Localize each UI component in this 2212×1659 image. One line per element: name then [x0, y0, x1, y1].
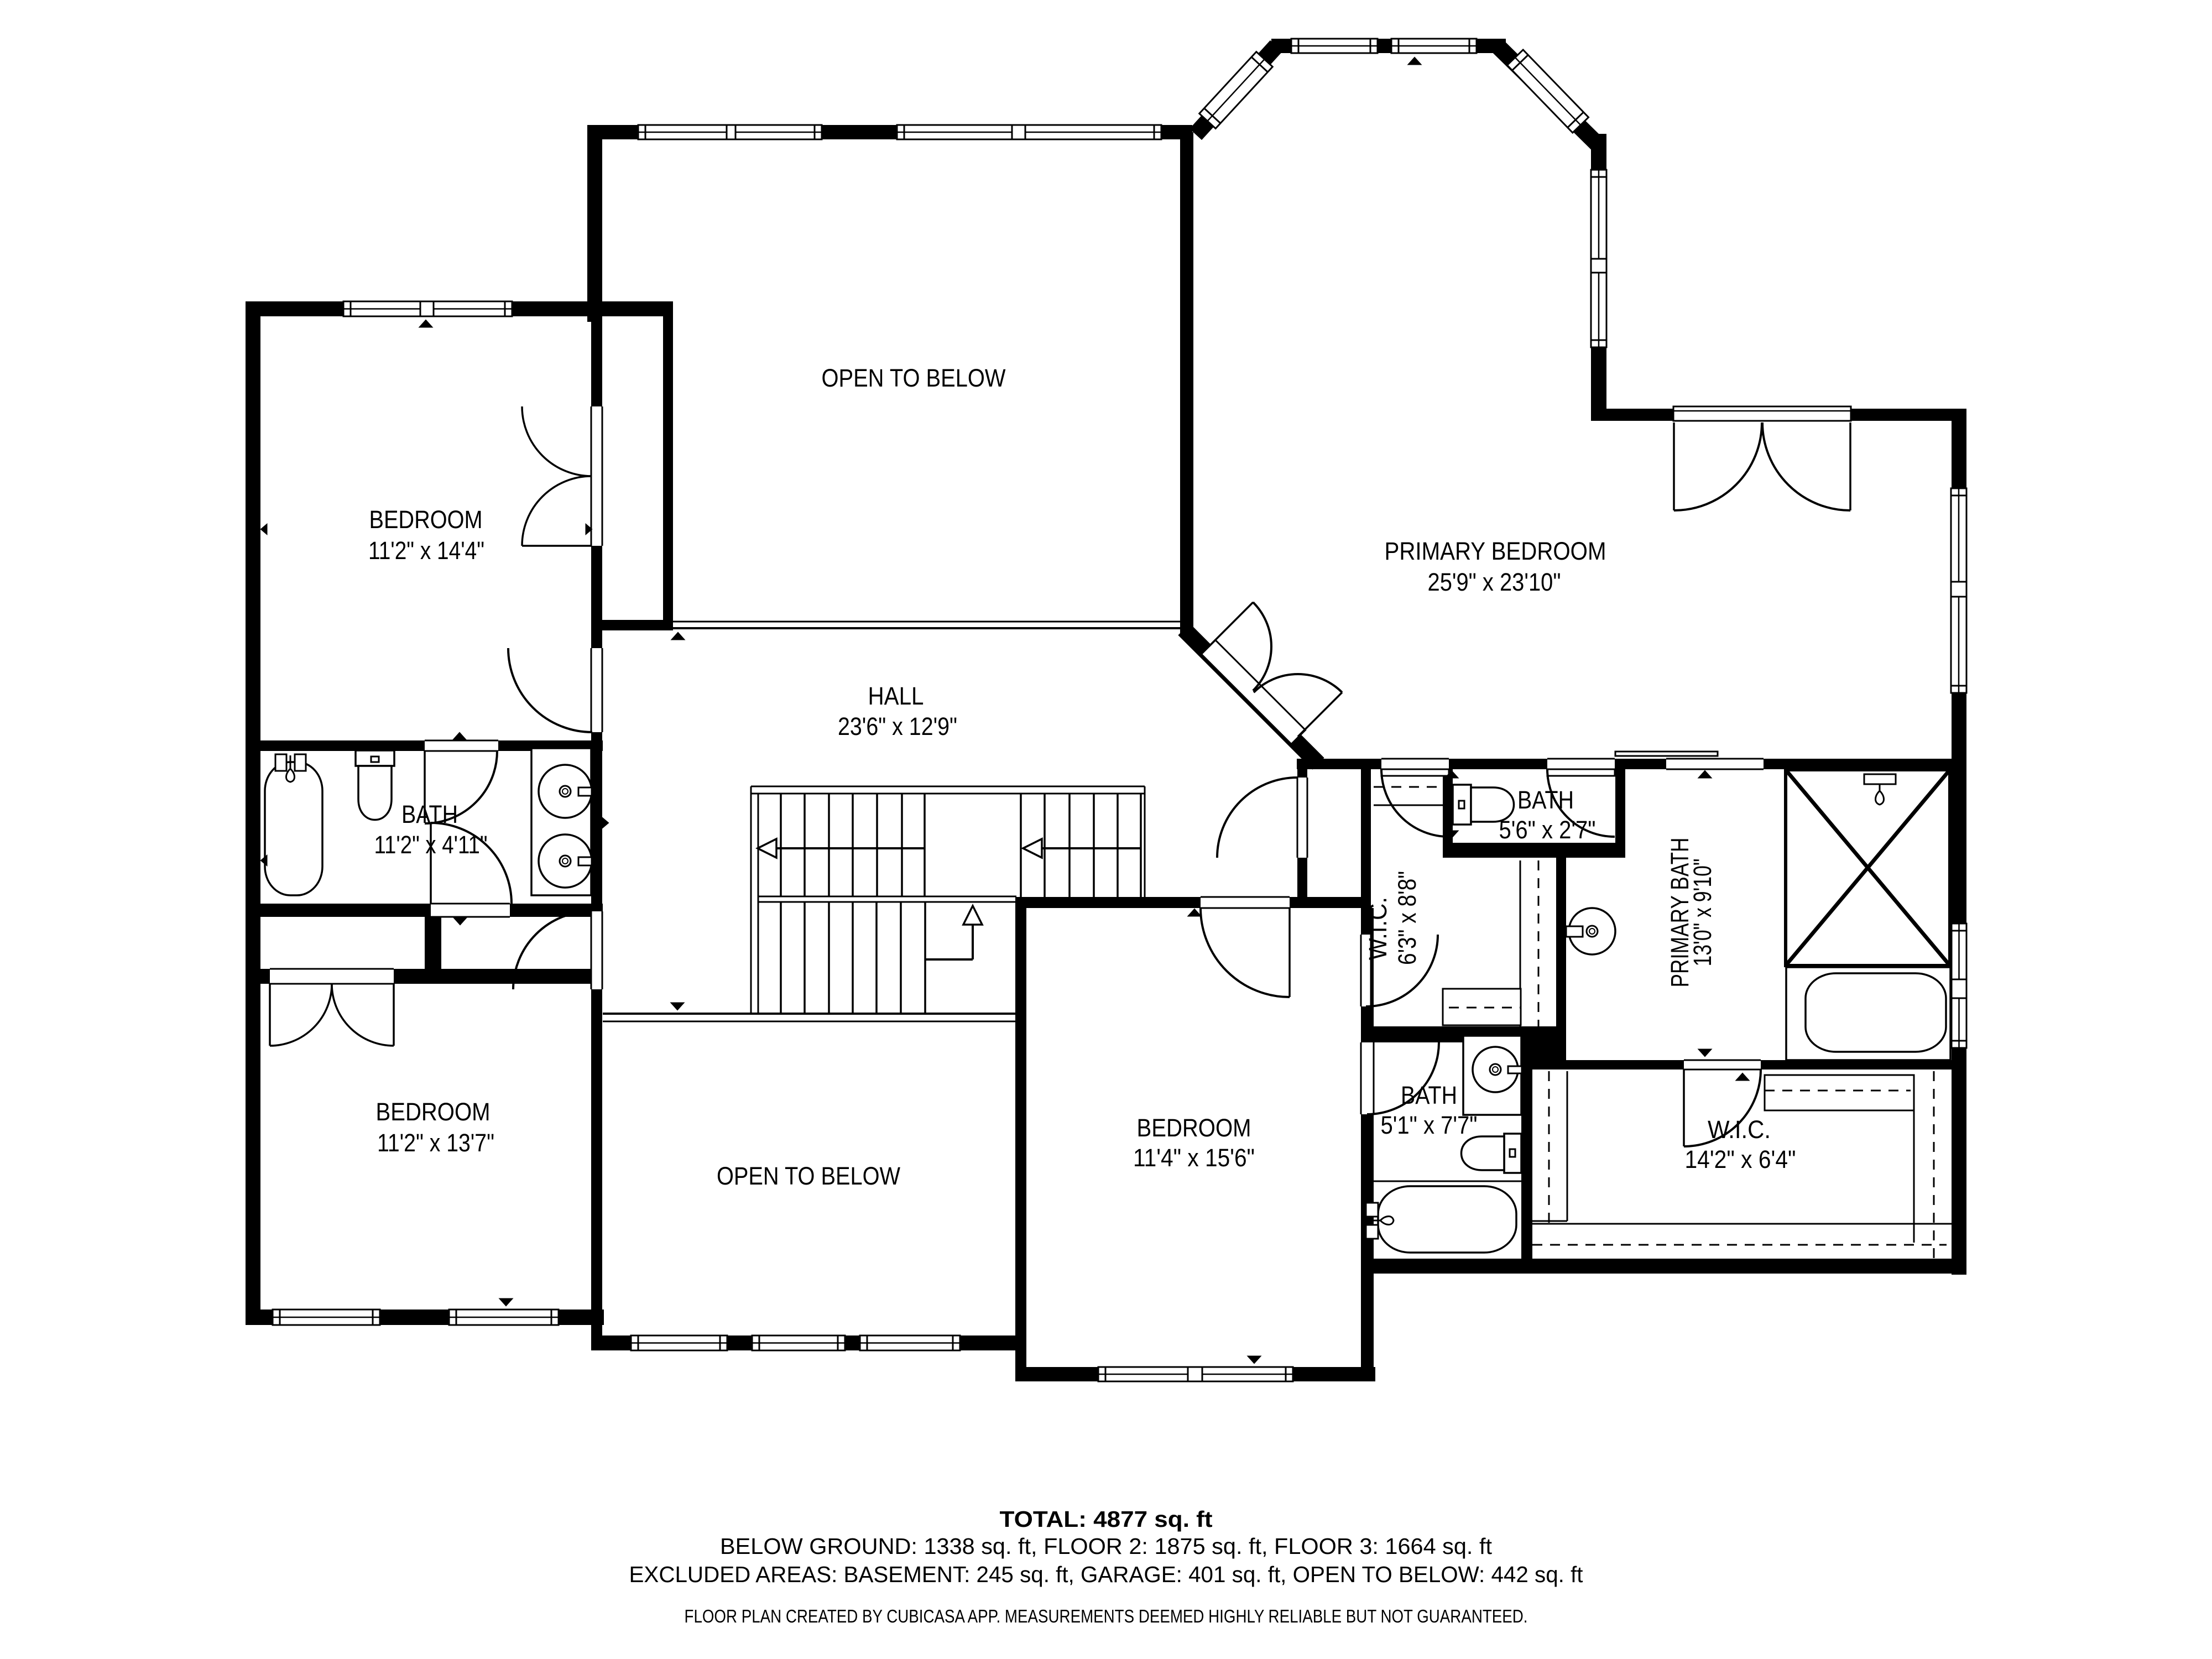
svg-text:11'2" x 14'4": 11'2" x 14'4" — [368, 536, 484, 565]
svg-text:FLOOR PLAN CREATED BY CUBICASA: FLOOR PLAN CREATED BY CUBICASA APP. MEAS… — [685, 1606, 1528, 1626]
svg-text:BATH: BATH — [1517, 786, 1574, 814]
svg-text:5'6" x 2'7": 5'6" x 2'7" — [1499, 816, 1596, 844]
svg-text:W.I.C.: W.I.C. — [1364, 897, 1392, 960]
svg-text:11'2" x 4'11": 11'2" x 4'11" — [374, 831, 488, 859]
svg-text:EXCLUDED AREAS: BASEMENT: 245: EXCLUDED AREAS: BASEMENT: 245 sq. ft, GA… — [629, 1562, 1584, 1587]
svg-text:TOTAL: 4877 sq. ft: TOTAL: 4877 sq. ft — [1000, 1506, 1213, 1532]
svg-text:6'3" x 8'8": 6'3" x 8'8" — [1393, 871, 1421, 965]
svg-text:BEDROOM: BEDROOM — [369, 505, 483, 534]
svg-text:W.I.C.: W.I.C. — [1708, 1115, 1771, 1144]
svg-text:25'9" x 23'10": 25'9" x 23'10" — [1428, 568, 1561, 596]
svg-text:5'1" x 7'7": 5'1" x 7'7" — [1381, 1111, 1478, 1139]
svg-text:14'2" x 6'4": 14'2" x 6'4" — [1685, 1145, 1796, 1173]
svg-text:11'4" x 15'6": 11'4" x 15'6" — [1133, 1144, 1255, 1172]
svg-text:11'2" x 13'7": 11'2" x 13'7" — [377, 1129, 494, 1157]
svg-text:BEDROOM: BEDROOM — [376, 1098, 491, 1126]
svg-text:BATH: BATH — [401, 800, 458, 828]
svg-text:13'0" x 9'10": 13'0" x 9'10" — [1688, 859, 1717, 967]
svg-text:BEDROOM: BEDROOM — [1137, 1114, 1251, 1142]
svg-text:23'6" x 12'9": 23'6" x 12'9" — [838, 712, 957, 740]
svg-text:HALL: HALL — [868, 682, 924, 710]
svg-text:BELOW GROUND: 1338 sq. ft, FLO: BELOW GROUND: 1338 sq. ft, FLOOR 2: 1875… — [720, 1533, 1493, 1559]
svg-text:BATH: BATH — [1401, 1081, 1457, 1109]
svg-text:OPEN TO BELOW: OPEN TO BELOW — [717, 1162, 900, 1190]
svg-text:OPEN TO BELOW: OPEN TO BELOW — [822, 364, 1006, 392]
svg-text:PRIMARY BEDROOM: PRIMARY BEDROOM — [1385, 537, 1606, 565]
